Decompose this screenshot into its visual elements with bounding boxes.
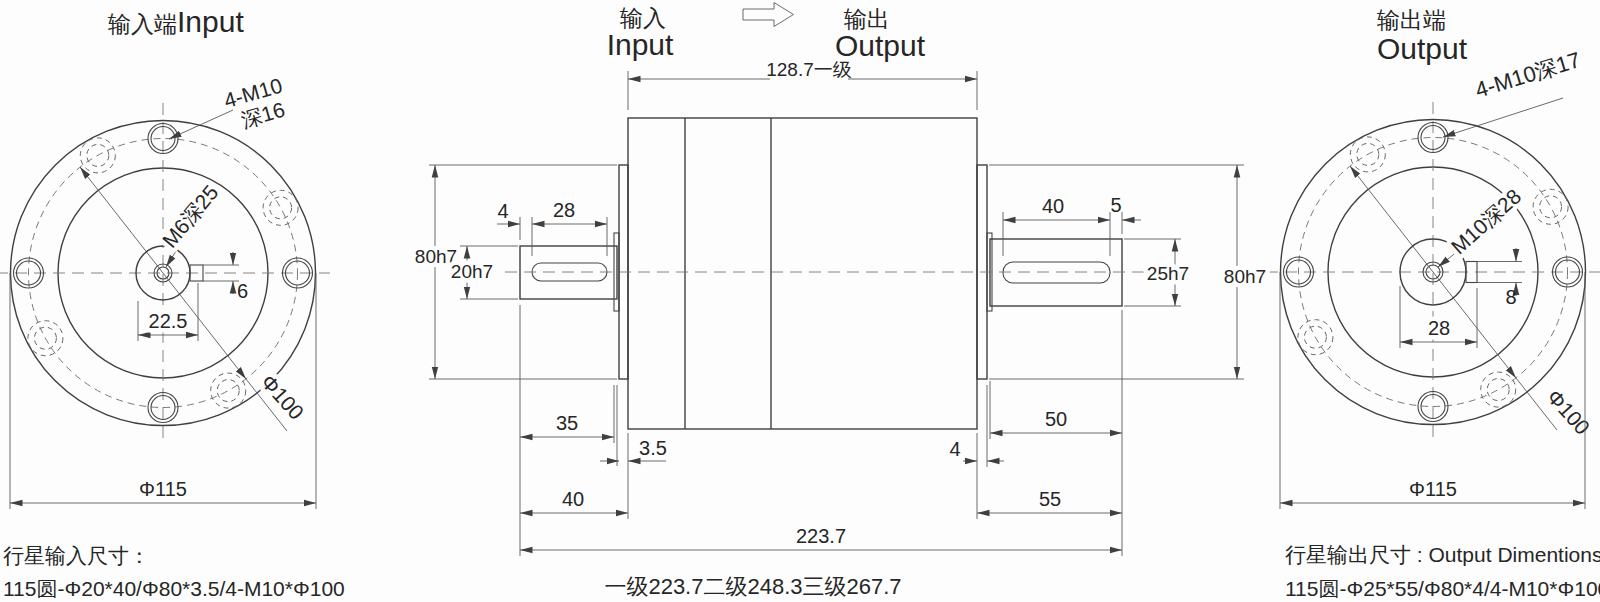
input-center-tap-label: M6深25 xyxy=(158,181,223,252)
output-bolt-spec-label: 4-M10深17 xyxy=(1472,47,1583,103)
output-note-spec: 115圆-Φ25*55/Φ80*4/4-M10*Φ100 xyxy=(1285,577,1600,600)
input-shaft-to-flange-dim: 35 xyxy=(556,412,578,434)
output-end-title-en: Output xyxy=(1377,32,1468,65)
output-flange-view: 8 28 4-M10深17 M10深28 Φ100 Φ115 xyxy=(1266,47,1600,509)
mid-input-title-en: Input xyxy=(607,28,674,61)
input-key-length-dim: 28 xyxy=(553,199,575,221)
output-flange-thickness-dim: 4 xyxy=(949,438,960,460)
output-center-tap-label: M10深28 xyxy=(1447,184,1526,258)
input-flange-dia-dim: Φ115 xyxy=(139,478,187,500)
stage1-length-dim: 128.7一级 xyxy=(766,59,852,80)
input-shaft-dia-dim: 20h7 xyxy=(451,261,493,282)
side-section-view: 128.7一级 4 28 80h7 20h7 35 3.5 40 xyxy=(415,59,1266,556)
titles: 输入端Input 输入 Input 输出 Output 输出端 Output xyxy=(108,3,1468,66)
output-flange-dia-dim: Φ115 xyxy=(1409,478,1457,500)
output-flange-to-end-dim: 50 xyxy=(1045,408,1067,430)
gearbox-drawing-page: 输入端Input 输入 Input 输出 Output 输出端 Output 6… xyxy=(0,0,1600,602)
input-shaft-to-body-dim: 40 xyxy=(562,488,584,510)
output-end-title-zh: 输出端 xyxy=(1377,7,1446,33)
input-keyway-width-dim: 6 xyxy=(237,280,248,302)
input-end-title: 输入端Input xyxy=(108,5,244,38)
input-flange-thickness-dim: 3.5 xyxy=(639,437,667,459)
output-key-offset-dim: 5 xyxy=(1110,194,1121,216)
stage-lengths-note: 一级223.7二级248.3三级267.7 xyxy=(604,574,901,599)
output-shaft-dia-dim: 25h7 xyxy=(1147,263,1189,284)
input-note-title: 行星输入尺寸： xyxy=(3,544,150,567)
output-pilot-dia-dim: 80h7 xyxy=(1224,266,1266,287)
output-note-title: 行星输出尺寸 : Output Dimentions xyxy=(1285,543,1600,566)
output-body-to-end-dim: 55 xyxy=(1039,488,1061,510)
total-length-dim: 223.7 xyxy=(796,525,846,547)
notes: 行星输入尺寸： 115圆-Φ20*40/Φ80*3.5/4-M10*Φ100 一… xyxy=(3,543,1600,600)
output-hub-width-dim: 28 xyxy=(1428,317,1450,339)
output-bolt-circle-dia: Φ100 xyxy=(1543,385,1595,439)
output-key-length-dim: 40 xyxy=(1042,195,1064,217)
input-hub-width-dim: 22.5 xyxy=(149,310,188,332)
input-key-offset-dim: 4 xyxy=(497,200,508,222)
flow-arrow-icon xyxy=(743,3,794,27)
mid-output-title-en: Output xyxy=(835,29,926,62)
input-flange-view: 6 22.5 4-M10 深16 M6深25 Φ100 Φ115 xyxy=(0,74,330,509)
output-keyway-width-dim: 8 xyxy=(1505,286,1516,308)
input-note-spec: 115圆-Φ20*40/Φ80*3.5/4-M10*Φ100 xyxy=(3,577,345,600)
input-bolt-circle-dia: Φ100 xyxy=(257,370,309,424)
